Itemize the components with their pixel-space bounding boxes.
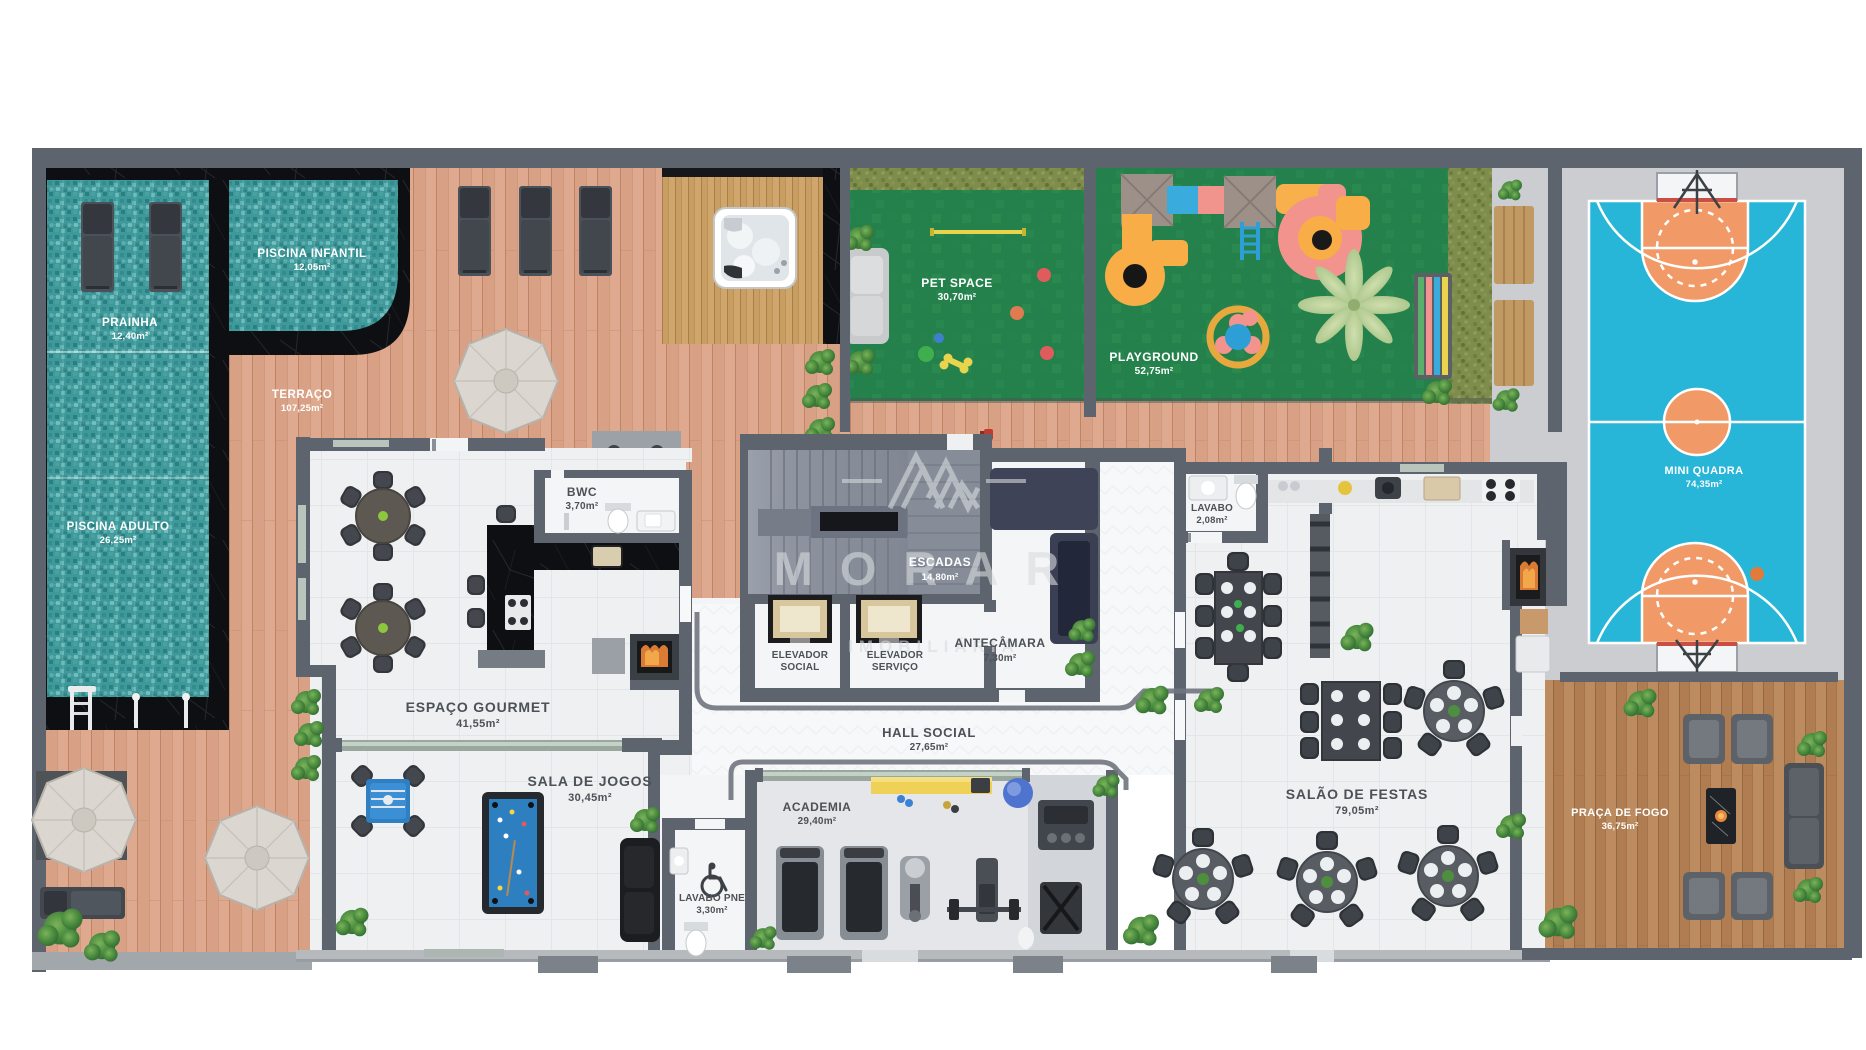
svg-text:BWC: BWC xyxy=(567,485,597,499)
svg-text:14,80m²: 14,80m² xyxy=(922,572,959,583)
svg-text:29,40m²: 29,40m² xyxy=(798,816,837,827)
svg-text:79,05m²: 79,05m² xyxy=(1335,805,1379,817)
svg-text:LAVABO PNE: LAVABO PNE xyxy=(679,893,745,904)
svg-text:PRAINHA: PRAINHA xyxy=(102,317,158,329)
svg-text:SALA DE JOGOS: SALA DE JOGOS xyxy=(527,773,652,789)
svg-text:PISCINA ADULTO: PISCINA ADULTO xyxy=(67,521,170,533)
svg-text:30,70m²: 30,70m² xyxy=(938,292,977,303)
svg-text:12,40m²: 12,40m² xyxy=(112,331,149,342)
svg-text:ELEVADOR: ELEVADOR xyxy=(772,650,829,661)
svg-text:2,08m²: 2,08m² xyxy=(1196,515,1227,526)
svg-text:PRAÇA DE FOGO: PRAÇA DE FOGO xyxy=(1571,807,1669,819)
svg-text:ESCADAS: ESCADAS xyxy=(909,555,971,569)
svg-text:MINI QUADRA: MINI QUADRA xyxy=(1665,465,1744,477)
svg-text:74,35m²: 74,35m² xyxy=(1686,479,1723,490)
svg-text:ESPAÇO GOURMET: ESPAÇO GOURMET xyxy=(406,699,551,715)
svg-text:PLAYGROUND: PLAYGROUND xyxy=(1109,350,1198,364)
svg-text:36,75m²: 36,75m² xyxy=(1602,821,1639,832)
svg-text:30,45m²: 30,45m² xyxy=(568,792,612,804)
svg-text:LAVABO: LAVABO xyxy=(1191,503,1233,514)
svg-text:7,30m²: 7,30m² xyxy=(984,653,1017,664)
svg-text:26,25m²: 26,25m² xyxy=(100,535,137,546)
svg-text:HALL SOCIAL: HALL SOCIAL xyxy=(882,725,976,740)
svg-text:SOCIAL: SOCIAL xyxy=(781,662,820,673)
svg-text:41,55m²: 41,55m² xyxy=(456,718,500,730)
svg-text:ACADEMIA: ACADEMIA xyxy=(783,800,852,814)
svg-text:SERVIÇO: SERVIÇO xyxy=(872,662,918,673)
svg-text:SALÃO DE FESTAS: SALÃO DE FESTAS xyxy=(1286,785,1428,802)
svg-text:107,25m²: 107,25m² xyxy=(281,403,323,414)
svg-text:3,70m²: 3,70m² xyxy=(566,501,599,512)
svg-text:ELEVADOR: ELEVADOR xyxy=(867,650,924,661)
svg-text:3,30m²: 3,30m² xyxy=(696,905,727,916)
svg-text:PISCINA INFANTIL: PISCINA INFANTIL xyxy=(257,248,366,260)
svg-text:ANTECÂMARA: ANTECÂMARA xyxy=(955,635,1046,650)
svg-text:TERRAÇO: TERRAÇO xyxy=(272,389,332,401)
svg-text:12,05m²: 12,05m² xyxy=(294,262,331,273)
svg-text:52,75m²: 52,75m² xyxy=(1135,366,1174,377)
svg-text:PET SPACE: PET SPACE xyxy=(921,276,993,290)
svg-text:27,65m²: 27,65m² xyxy=(910,742,949,753)
